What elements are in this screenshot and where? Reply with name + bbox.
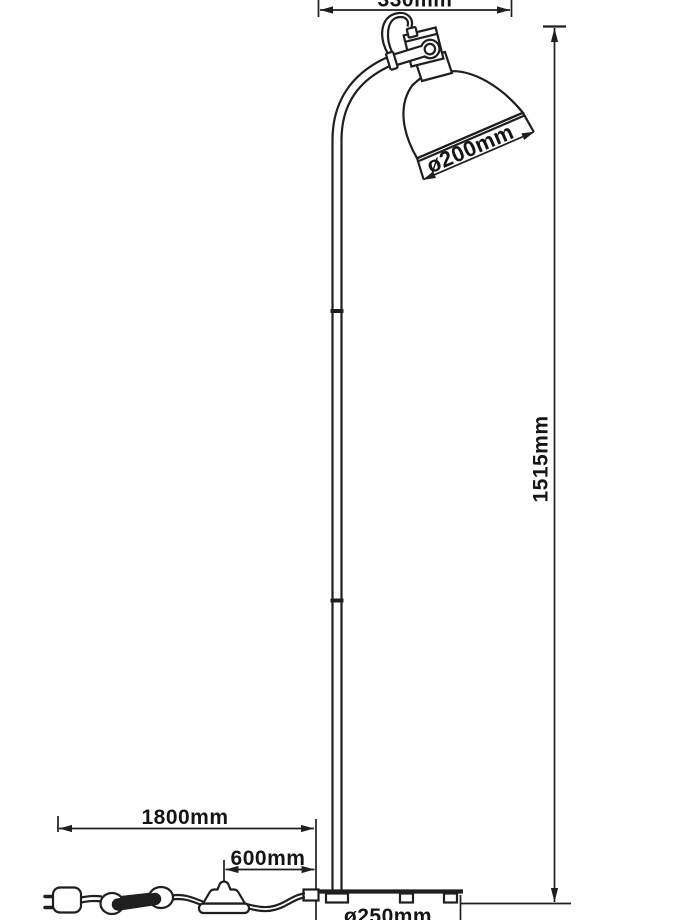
coil-wrap-overlay xyxy=(118,899,155,905)
base-pole-foot xyxy=(326,894,348,903)
base-foot xyxy=(400,894,413,903)
arrowhead-left xyxy=(59,825,72,832)
cable-segment xyxy=(245,898,305,912)
arrowhead-up xyxy=(551,28,558,42)
arrowhead-right xyxy=(301,825,314,832)
cable-entry-block xyxy=(304,890,319,901)
base-foot xyxy=(444,894,457,903)
arrowhead-left xyxy=(320,6,333,13)
base-diameter-label: ø250mm xyxy=(344,905,432,920)
head-width-dimension: 330mm xyxy=(319,0,512,17)
total-height-label: 1515mm xyxy=(530,415,553,502)
cable-coil xyxy=(101,887,174,914)
floor-lamp-technical-drawing: 330mm 1515mm 1800mm 600mm ø250mm xyxy=(0,0,690,920)
head-width-label: 330mm xyxy=(378,0,453,12)
plug-body xyxy=(53,888,81,913)
switch-distance-dimension: 600mm xyxy=(224,847,315,881)
arrowhead-right xyxy=(497,6,510,13)
power-plug xyxy=(45,888,81,913)
arrowhead-down xyxy=(551,888,558,902)
lamp-base xyxy=(304,890,464,903)
switch-base xyxy=(199,904,249,914)
cable-segment xyxy=(81,896,102,898)
drawing-canvas: 330mm 1515mm 1800mm 600mm ø250mm xyxy=(0,0,690,920)
foot-switch xyxy=(199,882,249,914)
switch-distance-label: 600mm xyxy=(231,847,306,870)
lamp-pole xyxy=(331,57,392,892)
pole-inner-line xyxy=(342,66,392,892)
cable-segment xyxy=(81,901,102,903)
switch-dome xyxy=(203,882,245,904)
shade-rim-cap-right xyxy=(523,112,534,133)
lamp-shade: ø200mm xyxy=(385,45,536,183)
cable-length-label: 1800mm xyxy=(141,806,228,829)
cable-grommet xyxy=(407,27,418,38)
